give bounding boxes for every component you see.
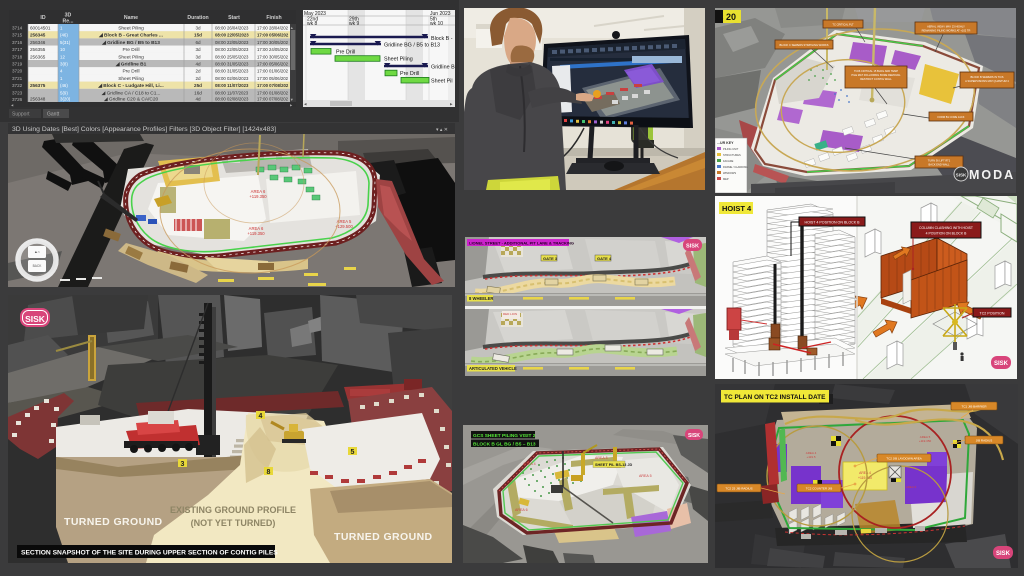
svg-text:+119.350: +119.350 bbox=[249, 194, 267, 199]
svg-text:17:00 01/06/202: 17:00 01/06/202 bbox=[257, 69, 289, 74]
svg-text:SISK: SISK bbox=[688, 433, 700, 439]
svg-text:◢ Gridline C20 & CA/C20: ◢ Gridline C20 & CA/C20 bbox=[104, 97, 159, 103]
svg-text:256348: 256348 bbox=[30, 97, 46, 102]
svg-text:Pre Drill: Pre Drill bbox=[336, 50, 355, 56]
svg-text:08:00 22/05/2023: 08:00 22/05/2023 bbox=[215, 33, 249, 38]
svg-text:...UR KEY: ...UR KEY bbox=[717, 141, 734, 145]
svg-text:17:00 28/04/202: 17:00 28/04/202 bbox=[257, 26, 289, 31]
svg-text:3722: 3722 bbox=[12, 83, 23, 88]
svg-text:BLOCK C SEWERS STR/PILING WORK: BLOCK C SEWERS STR/PILING WORKS bbox=[779, 43, 828, 47]
svg-text:+119.5: +119.5 bbox=[806, 455, 815, 459]
svg-text:Sheet Piling: Sheet Piling bbox=[384, 57, 413, 63]
svg-text:2d: 2d bbox=[195, 76, 201, 81]
svg-text:8 WHEELER: 8 WHEELER bbox=[469, 296, 493, 301]
svg-text:256345: 256345 bbox=[30, 33, 46, 38]
svg-text:STRUCTURES: STRUCTURES bbox=[723, 153, 741, 157]
svg-text:SECTION SNAPSHOT OF THE SITE D: SECTION SNAPSHOT OF THE SITE DURING UPPE… bbox=[21, 550, 278, 557]
svg-text:GCS SHEET PILING VISIT 2: GCS SHEET PILING VISIT 2 bbox=[473, 433, 536, 439]
svg-text:3716: 3716 bbox=[12, 40, 23, 45]
svg-text:3717: 3717 bbox=[12, 47, 23, 52]
svg-text:3: 3 bbox=[181, 461, 185, 468]
svg-text:JIB RADIUS: JIB RADIUS bbox=[976, 439, 993, 443]
svg-text:AREA 5: AREA 5 bbox=[595, 456, 608, 460]
svg-text:08:00 22/05/2023: 08:00 22/05/2023 bbox=[215, 47, 249, 52]
svg-text:Pre Drill: Pre Drill bbox=[122, 69, 139, 75]
svg-text:08:00 31/05/2023: 08:00 31/05/2023 bbox=[215, 69, 249, 74]
svg-text:Pre Drill: Pre Drill bbox=[400, 71, 419, 77]
svg-text:MEP: MEP bbox=[723, 177, 729, 181]
svg-text:+119.350: +119.350 bbox=[919, 439, 932, 443]
svg-text:3718: 3718 bbox=[12, 54, 23, 59]
svg-text:TC2 COUNTER JIB: TC2 COUNTER JIB bbox=[806, 487, 833, 491]
svg-text:RED LION: RED LION bbox=[503, 312, 517, 316]
svg-text:Support: Support bbox=[12, 112, 30, 118]
svg-text:256375: 256375 bbox=[30, 83, 46, 88]
svg-text:Gridline BG / B5 to B13: Gridline BG / B5 to B13 bbox=[384, 43, 440, 49]
svg-text:15d: 15d bbox=[194, 33, 202, 38]
svg-text:8: 8 bbox=[267, 469, 271, 476]
svg-text:60014501: 60014501 bbox=[30, 26, 51, 31]
svg-text:TC2 JIB LAYDOWN AREA: TC2 JIB LAYDOWN AREA bbox=[886, 457, 921, 461]
svg-text:◢ Gridline B1: ◢ Gridline B1 bbox=[115, 62, 147, 68]
svg-text:08:00 11/07/2023: 08:00 11/07/2023 bbox=[215, 90, 249, 95]
svg-text:08:00 25/05/2023: 08:00 25/05/2023 bbox=[215, 54, 249, 59]
svg-text:17:00 30/05/202: 17:00 30/05/202 bbox=[257, 40, 289, 45]
svg-text:BLOCK B SEWERS IN TC/S: BLOCK B SEWERS IN TC/S bbox=[970, 75, 1003, 79]
svg-text:BACK END WALL: BACK END WALL bbox=[929, 163, 951, 167]
svg-text:SISK: SISK bbox=[996, 551, 1011, 557]
svg-text:AREA 4: AREA 4 bbox=[859, 471, 871, 475]
svg-text:Re...: Re... bbox=[63, 19, 75, 25]
svg-text:AREA 5: AREA 5 bbox=[639, 474, 652, 478]
svg-text:◢ Block B - Great Charles ...: ◢ Block B - Great Charles ... bbox=[98, 33, 163, 39]
svg-text:08:00 26/04/2023: 08:00 26/04/2023 bbox=[215, 26, 249, 31]
svg-text:3721: 3721 bbox=[12, 76, 23, 81]
svg-text:4: 4 bbox=[259, 413, 263, 420]
svg-text:BLOCK B GL BG / B5 – B13: BLOCK B GL BG / B5 – B13 bbox=[473, 441, 536, 447]
svg-text:PILE MAT FOLLOWING BORE REMOVA: PILE MAT FOLLOWING BORE REMOVAL bbox=[851, 73, 901, 77]
svg-text:08:00 31/05/2023: 08:00 31/05/2023 bbox=[215, 62, 249, 67]
svg-text:2d: 2d bbox=[195, 69, 201, 74]
svg-text:10: 10 bbox=[60, 47, 65, 52]
svg-text:▾ ▴ ✕: ▾ ▴ ✕ bbox=[436, 127, 448, 133]
svg-text:MODA: MODA bbox=[969, 168, 1015, 182]
svg-text:SISK: SISK bbox=[994, 361, 1009, 367]
svg-text:4d: 4d bbox=[195, 97, 201, 102]
svg-text:FORM B1 CORE JACK: FORM B1 CORE JACK bbox=[937, 115, 964, 119]
svg-text:◢ Gridline CA / C18 to C1...: ◢ Gridline CA / C18 to C1... bbox=[102, 90, 161, 96]
svg-text:3d: 3d bbox=[195, 47, 201, 52]
svg-text:TURNED GROUND: TURNED GROUND bbox=[334, 531, 433, 543]
svg-text:REMAINING PILING WORKS AT +102: REMAINING PILING WORKS AT +102 TR bbox=[922, 29, 971, 33]
svg-text:TC2 25 JIB RADIUS: TC2 25 JIB RADIUS bbox=[725, 487, 752, 491]
svg-text:FACADE: FACADE bbox=[723, 159, 734, 163]
svg-text:COLUMN CLASHING WITH HOIST: COLUMN CLASHING WITH HOIST bbox=[919, 226, 973, 230]
svg-text:A SUPERVISIONS MAT QUANTUM 4: A SUPERVISIONS MAT QUANTUM 4 bbox=[965, 79, 1009, 83]
svg-text:wk 8: wk 8 bbox=[307, 21, 318, 27]
svg-text:Sheet Piling: Sheet Piling bbox=[118, 76, 144, 82]
svg-text:Finish: Finish bbox=[266, 15, 281, 21]
svg-text:256365: 256365 bbox=[30, 54, 46, 59]
svg-text:5(31): 5(31) bbox=[60, 40, 71, 45]
svg-text:17:00 05/06/202: 17:00 05/06/202 bbox=[257, 76, 289, 81]
svg-text:TURN 36 LIFT RT1: TURN 36 LIFT RT1 bbox=[928, 159, 951, 163]
svg-text:3(20): 3(20) bbox=[60, 97, 71, 102]
svg-text:◢ Block C - Ludgate Hill, Li..: ◢ Block C - Ludgate Hill, Li... bbox=[97, 83, 164, 89]
svg-text:Name: Name bbox=[124, 15, 138, 21]
svg-text:3(8): 3(8) bbox=[60, 62, 68, 67]
svg-text:(46): (46) bbox=[60, 33, 68, 38]
svg-text:08:00 11/07/2023: 08:00 11/07/2023 bbox=[215, 83, 249, 88]
svg-text:TC2 POSITION: TC2 POSITION bbox=[980, 311, 1005, 315]
svg-text:3719: 3719 bbox=[12, 62, 23, 67]
svg-text:EXISTING GROUND PROFILE: EXISTING GROUND PROFILE bbox=[170, 505, 296, 515]
svg-text:AREA 6: AREA 6 bbox=[906, 485, 917, 489]
svg-text:WINDOWS: WINDOWS bbox=[723, 171, 736, 175]
svg-text:TC1 JIB BARRIER: TC1 JIB BARRIER bbox=[961, 405, 987, 409]
svg-text:3714: 3714 bbox=[12, 26, 23, 31]
svg-text:Gantt: Gantt bbox=[47, 112, 60, 118]
svg-text:Start: Start bbox=[228, 15, 240, 21]
svg-text:SISK: SISK bbox=[956, 173, 967, 178]
svg-text:(46): (46) bbox=[60, 83, 68, 88]
svg-text:ARTICULATED VEHICLE: ARTICULATED VEHICLE bbox=[469, 366, 517, 371]
svg-text:12: 12 bbox=[60, 54, 65, 59]
svg-text:wk 10: wk 10 bbox=[430, 21, 443, 27]
svg-text:5: 5 bbox=[351, 449, 355, 456]
svg-text:256355: 256355 bbox=[30, 47, 46, 52]
svg-text:AERIAL VIEW / MAY 23 HIGHLY: AERIAL VIEW / MAY 23 HIGHLY bbox=[927, 25, 965, 29]
svg-text:wk 9: wk 9 bbox=[349, 21, 360, 27]
svg-text:3715: 3715 bbox=[12, 33, 23, 38]
svg-text:HOIST 4: HOIST 4 bbox=[722, 204, 752, 213]
svg-text:3D Using Dates [Best] Colors [: 3D Using Dates [Best] Colors [Appearance… bbox=[12, 126, 276, 133]
svg-text:5(9): 5(9) bbox=[60, 90, 68, 95]
svg-text:Sheet Piling: Sheet Piling bbox=[118, 54, 144, 60]
svg-text:256346: 256346 bbox=[30, 40, 46, 45]
svg-text:Pre Drill: Pre Drill bbox=[122, 47, 139, 53]
svg-text:17:00 24/05/202: 17:00 24/05/202 bbox=[257, 47, 289, 52]
svg-text:Sheet Piling: Sheet Piling bbox=[118, 26, 144, 32]
svg-text:BACK: BACK bbox=[33, 264, 43, 268]
svg-text:TC PLAN ON TC2 INSTALL DATE: TC PLAN ON TC2 INSTALL DATE bbox=[724, 394, 826, 401]
svg-text:GATE 3: GATE 3 bbox=[543, 256, 558, 261]
svg-text:SISK: SISK bbox=[25, 314, 46, 324]
svg-text:LIONEL STREET - ADDITIONAL PIT: LIONEL STREET - ADDITIONAL PIT LANE & TR… bbox=[469, 240, 574, 245]
svg-text:Sheet Pil: Sheet Pil bbox=[431, 78, 453, 84]
svg-text:RESTRICT CONTIG WALL: RESTRICT CONTIG WALL bbox=[860, 77, 892, 81]
svg-text:17:00 01/08/202: 17:00 01/08/202 bbox=[257, 90, 289, 95]
svg-text:25d: 25d bbox=[194, 83, 202, 88]
svg-text:AREA 6: AREA 6 bbox=[515, 508, 528, 512]
svg-text:Block B -: Block B - bbox=[431, 36, 453, 42]
svg-text:Gridline B: Gridline B bbox=[431, 65, 455, 71]
svg-text:SHEET PIL BS-13 JD: SHEET PIL BS-13 JD bbox=[595, 463, 633, 467]
svg-text:08:00 02/06/2023: 08:00 02/06/2023 bbox=[215, 76, 249, 81]
svg-text:3d: 3d bbox=[195, 54, 201, 59]
svg-text:TURNED GROUND: TURNED GROUND bbox=[64, 516, 163, 528]
svg-text:▲⌂: ▲⌂ bbox=[34, 250, 40, 254]
svg-text:3726: 3726 bbox=[12, 97, 23, 102]
svg-text:TC06 CRITICAL 15 BLDG AND TEMP: TC06 CRITICAL 15 BLDG AND TEMP bbox=[854, 69, 898, 73]
svg-text:16d: 16d bbox=[194, 90, 202, 95]
svg-text:17:00 07/08/202: 17:00 07/08/202 bbox=[257, 97, 289, 102]
svg-text:4 POSITION ON BLOCK B: 4 POSITION ON BLOCK B bbox=[926, 232, 967, 236]
svg-text:+119.350: +119.350 bbox=[247, 231, 265, 236]
svg-text:ID: ID bbox=[40, 15, 45, 21]
svg-text:08:00 02/08/2023: 08:00 02/08/2023 bbox=[215, 97, 249, 102]
svg-text:SISK: SISK bbox=[686, 244, 699, 250]
svg-text:FRAME / CLADDING: FRAME / CLADDING bbox=[723, 165, 748, 169]
svg-text:TC CRITICAL PLT: TC CRITICAL PLT bbox=[832, 23, 854, 27]
svg-text:3723: 3723 bbox=[12, 90, 23, 95]
svg-text:6d: 6d bbox=[195, 40, 201, 45]
svg-text:17:00 05/06/202: 17:00 05/06/202 bbox=[257, 62, 289, 67]
svg-text:08:00 22/05/2023: 08:00 22/05/2023 bbox=[215, 40, 249, 45]
svg-text:3720: 3720 bbox=[12, 69, 23, 74]
svg-text:17:00 07/08/202: 17:00 07/08/202 bbox=[257, 83, 289, 88]
svg-text:3d: 3d bbox=[195, 26, 201, 31]
svg-text:GATE 4: GATE 4 bbox=[597, 256, 612, 261]
svg-text:4d: 4d bbox=[195, 62, 201, 67]
svg-text:(NOT YET TURNED): (NOT YET TURNED) bbox=[191, 518, 276, 528]
svg-text:◢ Gridline BG / B5 to B13: ◢ Gridline BG / B5 to B13 bbox=[101, 40, 160, 46]
svg-text:17:00 05/06/202: 17:00 05/06/202 bbox=[257, 33, 289, 38]
svg-text:AREA 4: AREA 4 bbox=[523, 462, 536, 466]
svg-text:17:00 30/05/202: 17:00 30/05/202 bbox=[257, 54, 289, 59]
svg-text:PILING UNIT: PILING UNIT bbox=[723, 147, 739, 151]
svg-text:Duration: Duration bbox=[187, 15, 208, 21]
svg-text:HOIST 4 POSITION ON BLOCK B: HOIST 4 POSITION ON BLOCK B bbox=[804, 220, 860, 224]
